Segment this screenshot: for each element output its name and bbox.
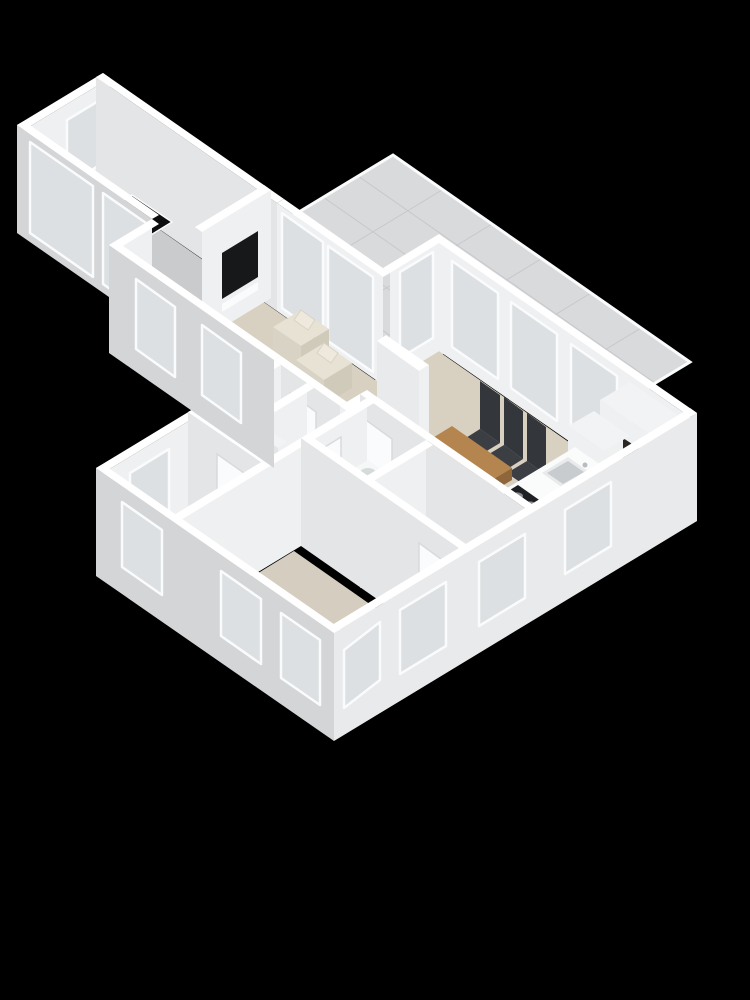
sink-faucet [583, 463, 588, 468]
jog-glass-door [400, 252, 433, 358]
floorplan-stage [0, 0, 750, 1000]
floorplan-canvas [0, 0, 750, 1000]
